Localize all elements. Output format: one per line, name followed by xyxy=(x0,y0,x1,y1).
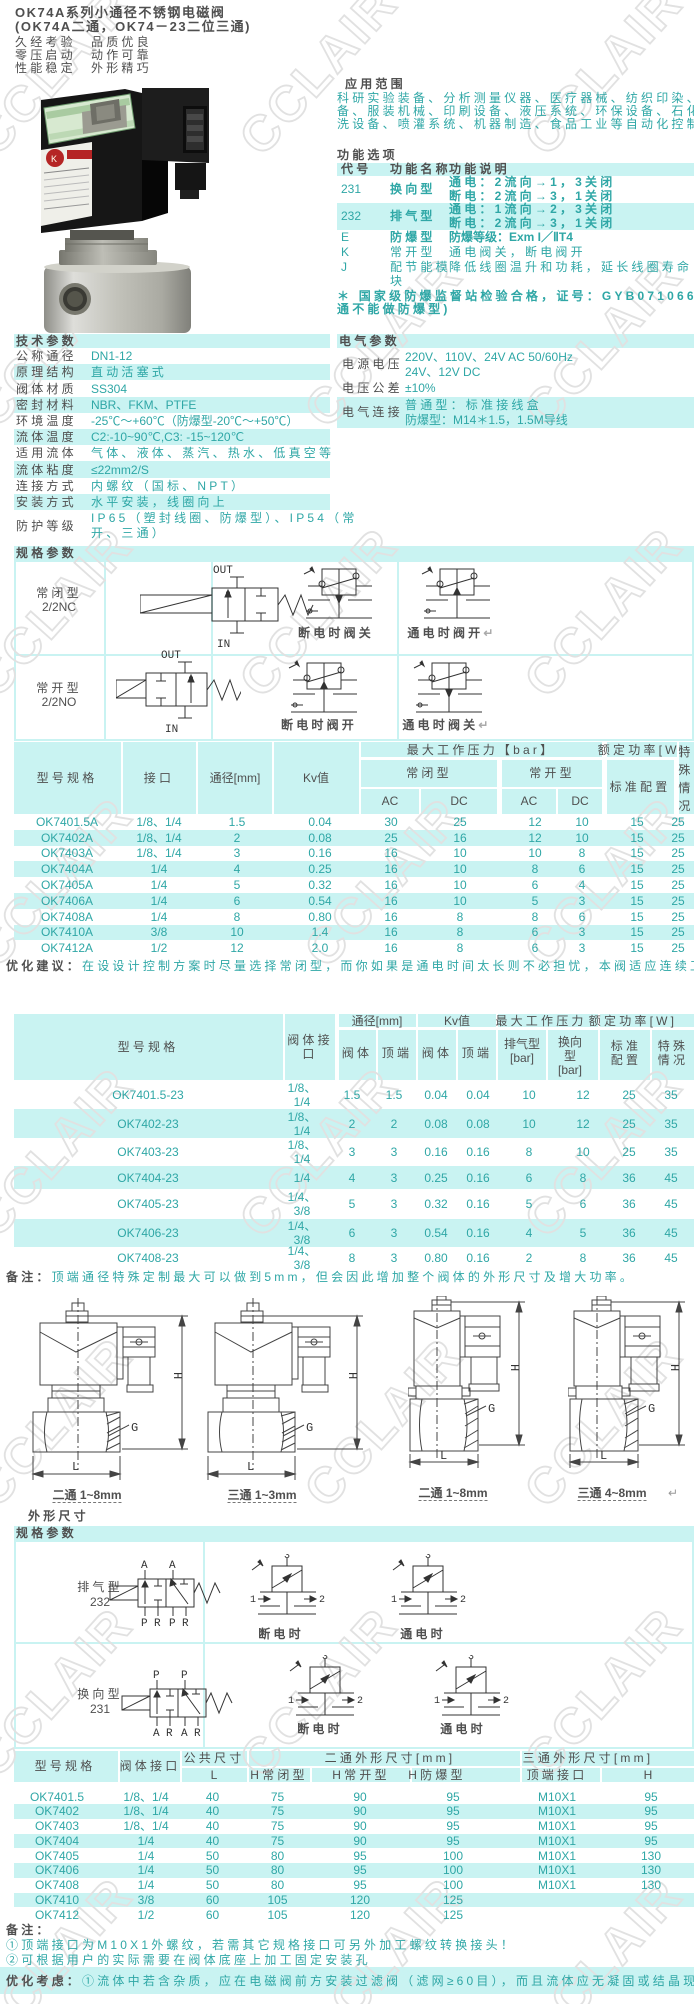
svg-text:A: A xyxy=(153,1728,160,1738)
svg-text:L: L xyxy=(247,1460,254,1474)
svg-text:H: H xyxy=(345,1372,359,1379)
svg-text:R: R xyxy=(154,1618,161,1628)
svg-text:OUT: OUT xyxy=(161,650,181,662)
svg-text:1: 1 xyxy=(288,1696,294,1707)
svg-text:1: 1 xyxy=(250,1595,256,1606)
svg-text:3: 3 xyxy=(468,1655,474,1663)
svg-text:2: 2 xyxy=(503,1696,509,1707)
svg-text:G: G xyxy=(306,1421,313,1435)
svg-text:3: 3 xyxy=(322,1655,328,1663)
svg-text:L: L xyxy=(600,1449,607,1463)
svg-text:H: H xyxy=(170,1372,184,1379)
svg-text:G: G xyxy=(648,1402,655,1416)
svg-text:R: R xyxy=(182,1618,189,1628)
svg-text:P: P xyxy=(169,1618,176,1628)
svg-text:P: P xyxy=(141,1618,148,1628)
svg-text:1: 1 xyxy=(391,1595,397,1606)
svg-text:A: A xyxy=(169,1560,176,1572)
svg-text:1: 1 xyxy=(434,1696,440,1707)
svg-text:2: 2 xyxy=(357,1696,363,1707)
svg-text:IN: IN xyxy=(165,724,178,736)
svg-text:3: 3 xyxy=(284,1554,290,1562)
svg-text:H: H xyxy=(507,1364,521,1371)
svg-text:A: A xyxy=(141,1560,148,1572)
svg-text:K: K xyxy=(51,154,57,164)
svg-text:R: R xyxy=(194,1728,201,1738)
svg-text:OUT: OUT xyxy=(213,565,233,577)
svg-text:H: H xyxy=(667,1364,681,1371)
svg-text:R: R xyxy=(166,1728,173,1738)
svg-text:P: P xyxy=(153,1670,160,1682)
svg-text:2: 2 xyxy=(460,1595,466,1606)
svg-text:3: 3 xyxy=(425,1554,431,1562)
svg-text:A: A xyxy=(181,1728,188,1738)
svg-text:G: G xyxy=(488,1402,495,1416)
svg-text:G: G xyxy=(131,1421,138,1435)
svg-text:L: L xyxy=(440,1449,447,1463)
svg-text:P: P xyxy=(181,1670,188,1682)
svg-text:L: L xyxy=(72,1460,79,1474)
svg-text:2: 2 xyxy=(319,1595,325,1606)
